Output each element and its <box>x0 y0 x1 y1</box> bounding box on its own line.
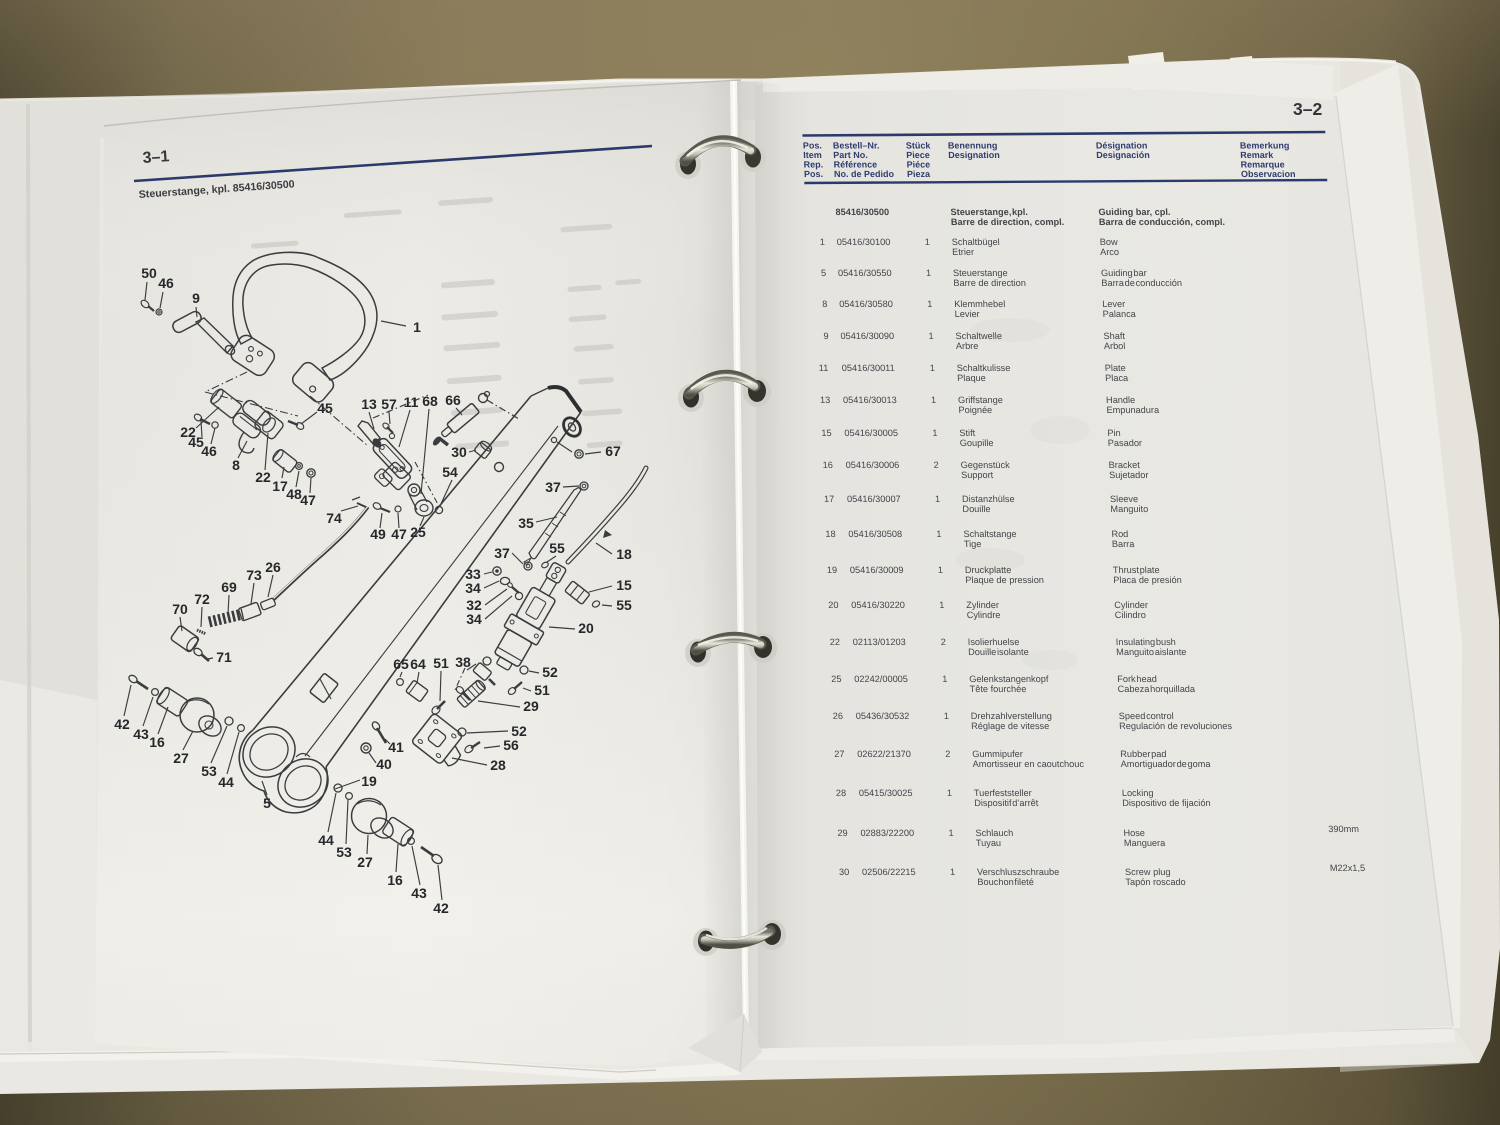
svg-text:22: 22 <box>830 637 841 647</box>
svg-text:47: 47 <box>391 526 407 542</box>
svg-text:2: 2 <box>933 460 939 470</box>
svg-text:1: 1 <box>926 268 932 278</box>
svg-text:Screw plug: Screw plug <box>1125 867 1171 877</box>
svg-text:27: 27 <box>173 750 189 766</box>
svg-text:70: 70 <box>172 601 188 617</box>
svg-text:9: 9 <box>192 290 200 306</box>
svg-text:Placa de presión: Placa de presión <box>1113 575 1182 585</box>
svg-text:Schaltstange: Schaltstange <box>963 529 1017 539</box>
svg-text:1: 1 <box>932 428 938 438</box>
svg-text:Hose: Hose <box>1123 828 1145 838</box>
svg-text:11: 11 <box>404 394 419 410</box>
svg-text:Remarque: Remarque <box>1240 160 1284 170</box>
svg-text:Manguito: Manguito <box>1110 504 1148 514</box>
svg-text:42: 42 <box>433 900 449 916</box>
svg-text:Locking: Locking <box>1122 788 1154 798</box>
svg-text:37: 37 <box>545 479 561 495</box>
svg-text:25: 25 <box>410 524 426 540</box>
svg-text:29: 29 <box>837 828 848 838</box>
svg-text:Zylinder: Zylinder <box>966 600 999 610</box>
svg-text:55: 55 <box>549 540 565 556</box>
svg-text:Cilindro: Cilindro <box>1115 610 1147 620</box>
svg-text:Tuerfeststeller: Tuerfeststeller <box>974 788 1032 798</box>
svg-text:Dispositivo de fijación: Dispositivo de fijación <box>1122 798 1211 808</box>
svg-text:Réglage de vitesse: Réglage de vitesse <box>971 721 1050 731</box>
svg-text:Pieza: Pieza <box>907 169 931 179</box>
svg-text:71: 71 <box>216 649 232 665</box>
svg-text:29: 29 <box>523 698 539 714</box>
svg-text:Manguito aislante: Manguito aislante <box>1116 647 1187 657</box>
svg-text:05416/30100: 05416/30100 <box>837 237 891 247</box>
svg-text:Handle: Handle <box>1106 395 1136 405</box>
svg-text:Part No.: Part No. <box>833 150 868 160</box>
svg-text:34: 34 <box>465 580 481 596</box>
svg-text:Barra de conducción: Barra de conducción <box>1101 278 1182 288</box>
svg-text:Désignation: Désignation <box>1096 141 1148 151</box>
svg-text:28: 28 <box>836 788 847 798</box>
svg-text:Guiding bar, cpl.: Guiding bar, cpl. <box>1098 207 1170 217</box>
svg-text:Manguera: Manguera <box>1124 838 1167 848</box>
svg-text:16: 16 <box>149 734 165 750</box>
svg-text:8: 8 <box>232 457 240 473</box>
svg-text:30: 30 <box>451 444 467 460</box>
svg-text:47: 47 <box>300 492 316 508</box>
svg-text:5: 5 <box>821 268 827 278</box>
svg-text:Guiding bar: Guiding bar <box>1101 268 1147 278</box>
svg-text:2: 2 <box>945 749 951 759</box>
svg-text:1: 1 <box>935 494 941 504</box>
svg-text:Plaque: Plaque <box>957 373 986 383</box>
svg-text:Distanzhülse: Distanzhülse <box>962 494 1015 504</box>
svg-text:42: 42 <box>114 716 130 732</box>
svg-text:1: 1 <box>927 299 933 309</box>
svg-text:28: 28 <box>490 757 506 773</box>
svg-text:54: 54 <box>442 464 458 480</box>
svg-text:53: 53 <box>201 763 217 779</box>
svg-text:Lever: Lever <box>1102 299 1125 309</box>
svg-text:Etrier: Etrier <box>952 247 974 257</box>
svg-text:05436/30532: 05436/30532 <box>856 711 910 721</box>
svg-text:67: 67 <box>605 443 621 459</box>
svg-text:30: 30 <box>839 867 850 877</box>
svg-text:20: 20 <box>828 600 839 610</box>
svg-text:05416/30508: 05416/30508 <box>848 529 902 539</box>
svg-text:05416/30005: 05416/30005 <box>844 428 898 438</box>
svg-text:68: 68 <box>422 393 438 409</box>
svg-text:Amortisseur en caoutchouc: Amortisseur en caoutchouc <box>972 759 1084 769</box>
svg-text:Bouchon fileté: Bouchon fileté <box>977 877 1034 887</box>
svg-text:Cabeza horquillada: Cabeza horquillada <box>1117 684 1196 694</box>
svg-text:Poignée: Poignée <box>958 405 992 415</box>
svg-text:Drehzahlverstellung: Drehzahlverstellung <box>971 711 1053 721</box>
svg-text:34: 34 <box>466 611 482 627</box>
svg-text:1: 1 <box>948 828 954 838</box>
svg-text:17: 17 <box>824 494 835 504</box>
svg-text:43: 43 <box>411 885 427 901</box>
svg-text:Steuerstange, kpl.: Steuerstange, kpl. <box>950 207 1028 217</box>
svg-text:Tuyau: Tuyau <box>976 838 1002 848</box>
svg-text:19: 19 <box>361 773 377 789</box>
svg-text:Gegenstück: Gegenstück <box>960 460 1010 470</box>
svg-text:Pin: Pin <box>1107 428 1121 438</box>
svg-text:05416/30090: 05416/30090 <box>840 331 894 341</box>
svg-text:25: 25 <box>831 674 842 684</box>
svg-text:41: 41 <box>388 739 404 755</box>
svg-text:Klemmhebel: Klemmhebel <box>954 299 1005 309</box>
svg-text:46: 46 <box>158 275 174 291</box>
svg-text:64: 64 <box>410 656 426 672</box>
svg-text:1: 1 <box>950 867 956 877</box>
svg-text:Barre de direction, compl.: Barre de direction, compl. <box>951 217 1065 227</box>
svg-text:1: 1 <box>939 600 945 610</box>
svg-text:3–2: 3–2 <box>1293 99 1322 119</box>
svg-text:05416/30580: 05416/30580 <box>839 299 893 309</box>
svg-text:40: 40 <box>376 756 392 772</box>
svg-text:16: 16 <box>822 460 833 470</box>
svg-text:27: 27 <box>357 854 373 870</box>
svg-text:1: 1 <box>820 237 826 247</box>
svg-text:Regulación de revoluciones: Regulación de revoluciones <box>1119 721 1233 731</box>
svg-text:44: 44 <box>318 832 334 848</box>
svg-text:Rod: Rod <box>1111 529 1128 539</box>
svg-text:Empunadura: Empunadura <box>1106 405 1160 415</box>
svg-text:16: 16 <box>387 872 403 888</box>
svg-text:1: 1 <box>938 565 944 575</box>
svg-text:Arbre: Arbre <box>956 341 979 351</box>
svg-text:05416/30550: 05416/30550 <box>838 268 892 278</box>
svg-text:Tête fourchée: Tête fourchée <box>969 684 1026 694</box>
svg-text:M22x1,5: M22x1,5 <box>1330 863 1366 873</box>
svg-text:Druckplatte: Druckplatte <box>965 565 1012 575</box>
svg-text:74: 74 <box>326 510 342 526</box>
svg-text:Tapón roscado: Tapón roscado <box>1125 877 1186 887</box>
svg-text:05416/30013: 05416/30013 <box>843 395 897 405</box>
svg-text:Levier: Levier <box>954 309 979 319</box>
svg-text:Plaque de pression: Plaque de pression <box>965 575 1044 585</box>
svg-text:57: 57 <box>381 396 397 412</box>
svg-text:05416/30006: 05416/30006 <box>845 460 899 470</box>
svg-text:Insulating bush: Insulating bush <box>1116 637 1176 647</box>
svg-text:45: 45 <box>317 400 333 416</box>
svg-text:Rubber pad: Rubber pad <box>1120 749 1167 759</box>
svg-text:Steuerstange: Steuerstange <box>953 268 1008 278</box>
svg-text:51: 51 <box>534 682 550 698</box>
svg-text:Référence: Référence <box>833 160 877 170</box>
svg-text:46: 46 <box>201 443 217 459</box>
svg-text:15: 15 <box>616 577 632 593</box>
svg-text:55: 55 <box>616 597 632 613</box>
svg-text:35: 35 <box>518 515 534 531</box>
svg-text:51: 51 <box>433 655 449 671</box>
svg-text:Bemerkung: Bemerkung <box>1240 141 1290 151</box>
svg-text:85416/30500: 85416/30500 <box>835 207 889 217</box>
svg-text:1: 1 <box>944 711 950 721</box>
svg-text:26: 26 <box>833 711 844 721</box>
svg-text:72: 72 <box>194 591 210 607</box>
svg-text:Shaft: Shaft <box>1103 331 1125 341</box>
svg-text:Stück: Stück <box>906 141 932 151</box>
svg-text:Remark: Remark <box>1240 150 1274 160</box>
svg-text:Schaltbügel: Schaltbügel <box>952 237 1000 247</box>
svg-text:Pasador: Pasador <box>1108 438 1143 448</box>
svg-text:No. de Pedido: No. de Pedido <box>834 169 895 179</box>
svg-text:Arbol: Arbol <box>1104 341 1126 351</box>
svg-text:05415/30025: 05415/30025 <box>859 788 913 798</box>
svg-text:73: 73 <box>246 567 262 583</box>
svg-text:3–1: 3–1 <box>142 148 170 167</box>
svg-text:44: 44 <box>218 774 234 790</box>
svg-text:2: 2 <box>941 637 947 647</box>
svg-text:1: 1 <box>928 331 934 341</box>
svg-text:05416/30009: 05416/30009 <box>850 565 904 575</box>
svg-text:Griffstange: Griffstange <box>958 395 1003 405</box>
svg-text:49: 49 <box>370 526 386 542</box>
svg-text:Barra: Barra <box>1112 539 1136 549</box>
svg-text:Dispositif d’arrêt: Dispositif d’arrêt <box>974 798 1039 808</box>
svg-text:Piece: Piece <box>906 150 930 160</box>
svg-text:Benennung: Benennung <box>948 141 998 151</box>
svg-text:Support: Support <box>961 470 994 480</box>
svg-text:11: 11 <box>819 363 829 373</box>
svg-text:1: 1 <box>413 319 421 335</box>
svg-text:Bracket: Bracket <box>1108 460 1140 470</box>
svg-text:Pos.: Pos. <box>804 169 823 179</box>
svg-text:5: 5 <box>263 795 271 811</box>
svg-text:50: 50 <box>141 265 157 281</box>
svg-text:Schaltkulisse: Schaltkulisse <box>957 363 1011 373</box>
svg-text:65: 65 <box>393 656 409 672</box>
svg-text:15: 15 <box>821 428 832 438</box>
svg-text:Bow: Bow <box>1100 237 1119 247</box>
svg-text:18: 18 <box>825 529 836 539</box>
svg-text:Gelenkstangenkopf: Gelenkstangenkopf <box>969 674 1049 684</box>
svg-text:27: 27 <box>834 749 845 759</box>
svg-text:66: 66 <box>445 392 461 408</box>
svg-text:20: 20 <box>578 620 594 636</box>
svg-text:43: 43 <box>133 726 149 742</box>
svg-text:Bestell–Nr.: Bestell–Nr. <box>833 141 880 151</box>
svg-text:Palanca: Palanca <box>1102 309 1136 319</box>
svg-text:1: 1 <box>936 529 942 539</box>
svg-text:56: 56 <box>503 737 519 753</box>
svg-text:1: 1 <box>942 674 948 684</box>
svg-text:Sleeve: Sleeve <box>1110 494 1138 504</box>
svg-text:Plate: Plate <box>1105 363 1126 373</box>
svg-text:Barra de conducción, compl.: Barra de conducción, compl. <box>1099 217 1225 227</box>
svg-text:Douille: Douille <box>962 504 990 514</box>
svg-text:18: 18 <box>616 546 632 562</box>
svg-text:02883/22200: 02883/22200 <box>860 828 914 838</box>
svg-text:8: 8 <box>822 299 828 309</box>
svg-text:Cylinder: Cylinder <box>1114 600 1148 610</box>
svg-text:Fork head: Fork head <box>1117 674 1157 684</box>
svg-text:1: 1 <box>925 237 931 247</box>
svg-text:Speed control: Speed control <box>1119 711 1174 721</box>
svg-text:05416/30011: 05416/30011 <box>842 363 895 373</box>
svg-text:05416/30007: 05416/30007 <box>847 494 901 504</box>
svg-text:02506/22215: 02506/22215 <box>862 867 916 877</box>
svg-text:1: 1 <box>931 395 937 405</box>
svg-text:Item: Item <box>803 150 822 160</box>
svg-text:1: 1 <box>930 363 936 373</box>
svg-text:1: 1 <box>947 788 953 798</box>
svg-text:02622/21370: 02622/21370 <box>857 749 911 759</box>
svg-text:9: 9 <box>823 331 829 341</box>
svg-text:Amortiguador de goma: Amortiguador de goma <box>1120 759 1211 769</box>
svg-text:Verschluszschraube: Verschluszschraube <box>977 867 1060 877</box>
svg-text:Gummipufer: Gummipufer <box>972 749 1023 759</box>
svg-text:19: 19 <box>827 565 838 575</box>
svg-text:52: 52 <box>542 664 558 680</box>
svg-text:Designación: Designación <box>1096 150 1150 160</box>
svg-text:69: 69 <box>221 579 237 595</box>
svg-text:Pos.: Pos. <box>803 141 822 151</box>
svg-text:Cylindre: Cylindre <box>967 610 1001 620</box>
svg-text:Piéce: Piéce <box>906 160 930 170</box>
svg-text:Placa: Placa <box>1105 373 1129 383</box>
svg-text:38: 38 <box>455 654 471 670</box>
svg-text:26: 26 <box>265 559 281 575</box>
svg-text:Schlauch: Schlauch <box>975 828 1013 838</box>
svg-text:Isolierhuelse: Isolierhuelse <box>968 637 1020 647</box>
svg-text:Arco: Arco <box>1100 247 1119 257</box>
svg-text:Thrust plate: Thrust plate <box>1113 565 1160 575</box>
svg-text:Douille isolante: Douille isolante <box>968 647 1029 657</box>
svg-text:Stift: Stift <box>959 428 976 438</box>
svg-text:37: 37 <box>494 545 510 561</box>
svg-text:Designation: Designation <box>948 150 1000 160</box>
svg-text:Rep.: Rep. <box>803 160 823 170</box>
svg-text:05416/30220: 05416/30220 <box>851 600 905 610</box>
svg-text:13: 13 <box>361 396 377 412</box>
svg-text:Barre de direction: Barre de direction <box>953 278 1026 288</box>
svg-text:02113/01203: 02113/01203 <box>853 637 906 647</box>
svg-text:53: 53 <box>336 844 352 860</box>
svg-text:13: 13 <box>820 395 831 405</box>
svg-text:Observacion: Observacion <box>1241 169 1296 179</box>
svg-text:Tige: Tige <box>964 539 982 549</box>
svg-text:Goupille: Goupille <box>960 438 994 448</box>
svg-text:390mm: 390mm <box>1328 824 1359 834</box>
svg-text:02242/00005: 02242/00005 <box>854 674 908 684</box>
svg-text:Schaltwelle: Schaltwelle <box>955 331 1002 341</box>
svg-text:Sujetador: Sujetador <box>1109 470 1149 480</box>
svg-text:22: 22 <box>255 469 271 485</box>
